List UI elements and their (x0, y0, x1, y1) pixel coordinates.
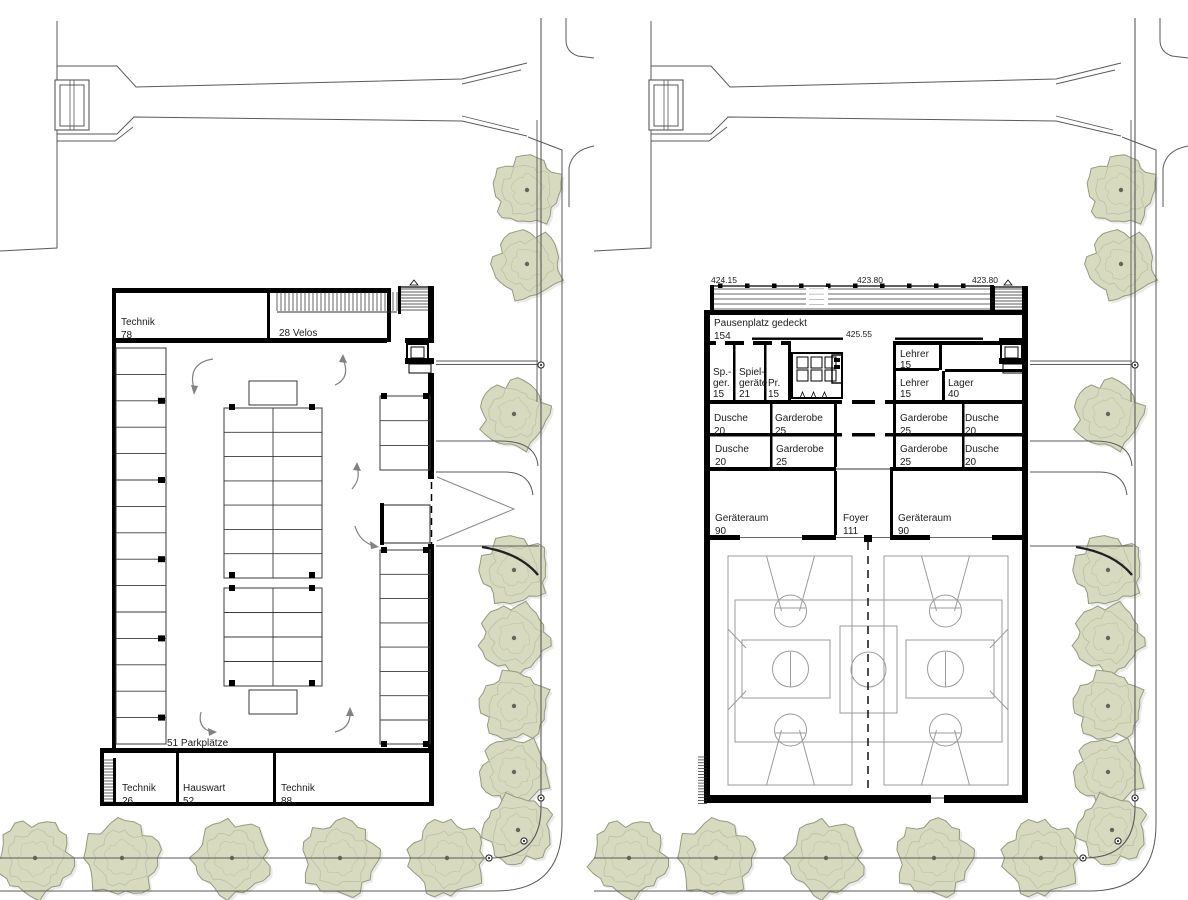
room-label-garderobe-l1: Garderobe (775, 413, 823, 424)
room-label-spielgeraete: Spiel- (739, 367, 765, 378)
tree (482, 793, 555, 868)
room-label-pausenplatz: Pausenplatz gedeckt (714, 318, 807, 329)
arrow-head (339, 354, 347, 363)
room-area-dusche-r1: 20 (965, 426, 977, 437)
tree-trunk-dot (1119, 188, 1123, 192)
tree (678, 818, 758, 897)
room-area-pausenplatz: 154 (714, 331, 731, 342)
site-boundary (594, 21, 651, 251)
elevation-label: 423.80 (857, 275, 883, 285)
room-area-geraeteraum-2: 90 (898, 526, 910, 537)
tree (1073, 670, 1147, 742)
tree-trunk-dot (1119, 262, 1123, 266)
driveway-edge-north (651, 63, 1121, 87)
tree (1087, 155, 1159, 227)
room-area-lehrer-1: 15 (900, 360, 912, 371)
room-area-hauswart-52: 52 (183, 796, 195, 807)
tree (303, 818, 383, 900)
labels-parking-level-plan: Technik78Technik26Hauswart52Technik8828 … (121, 317, 317, 807)
room-area-technik-88: 88 (281, 796, 293, 807)
room-area-technik-78: 78 (121, 330, 133, 341)
tree (1076, 793, 1150, 868)
tree-trunk-dot (512, 568, 516, 572)
tree (0, 821, 77, 900)
drive-arrow (335, 359, 346, 385)
room-label-dusche-r2: Dusche (965, 444, 999, 455)
room-area-geraeteraum-1: 90 (715, 526, 727, 537)
tree-trunk-dot (1106, 770, 1110, 774)
tree (407, 819, 487, 899)
room-area-garderobe-l1: 25 (775, 426, 787, 437)
tree-trunk-dot (516, 828, 520, 832)
room-label-sp-ger: Sp.- (713, 367, 731, 378)
elevation-label: 424.15 (711, 275, 737, 285)
room-area-lager: 40 (948, 389, 960, 400)
annotation-parkplaetze: 51 Parkplätze (167, 738, 229, 749)
street-kerb-outer (594, 137, 1156, 891)
tree (493, 155, 564, 227)
room-label-pr: 15 (768, 389, 780, 400)
tree (783, 818, 867, 900)
elevation-label: 423.80 (972, 275, 998, 285)
driveway-edge-south (57, 117, 527, 136)
plan-sheet: Technik78Technik26Hauswart52Technik8828 … (0, 0, 1188, 900)
room-label-lehrer-1: Lehrer (900, 349, 930, 360)
tree-canopy (189, 818, 270, 900)
annotation-velos: 28 Velos (279, 328, 317, 339)
arrow-head (191, 385, 198, 395)
room-label-technik-78: Technik (121, 317, 156, 328)
room-label-geraeteraum-2: Geräteraum (898, 513, 951, 524)
room-area-dusche-l1: 20 (714, 426, 726, 437)
room-label-technik-26: Technik (122, 783, 157, 794)
tree (1072, 601, 1148, 678)
parking-building (100, 280, 514, 806)
tree-trunk-dot (525, 188, 529, 192)
room-area-lehrer-2: 15 (900, 389, 912, 400)
room-label-spielgeraete: 21 (739, 389, 751, 400)
room-label-pr: Pr. (768, 378, 780, 389)
room-area-garderobe-r2: 25 (900, 457, 912, 468)
room-label-dusche-r1: Dusche (965, 413, 999, 424)
street-kerb-inner (0, 18, 541, 858)
tree-trunk-dot (512, 704, 516, 708)
room-label-lager: Lager (948, 378, 974, 389)
tree (897, 818, 977, 900)
room-label-garderobe-r2: Garderobe (900, 444, 948, 455)
tree-trunk-dot (512, 412, 516, 416)
room-label-garderobe-l2: Garderobe (776, 444, 824, 455)
room-label-technik-88: Technik (281, 783, 316, 794)
room-label-foyer: Foyer (843, 513, 869, 524)
sports-hall-building (698, 280, 1028, 803)
room-area-dusche-l2: 20 (715, 457, 727, 468)
arrow-head (208, 728, 217, 736)
street-kerb-outer (0, 137, 562, 891)
tree-trunk-dot (1106, 704, 1110, 708)
arrow-head (370, 541, 379, 549)
tree-trunk-dot (512, 636, 516, 640)
room-area-garderobe-r1: 25 (900, 426, 912, 437)
parking-level-plan: Technik78Technik26Hauswart52Technik8828 … (0, 18, 594, 900)
ramp-arrow (437, 477, 514, 541)
room-label-hauswart-52: Hauswart (183, 783, 225, 794)
stair-direction-mark (410, 280, 418, 285)
driveway-edge-north (57, 63, 527, 87)
room-label-dusche-l2: Dusche (715, 444, 749, 455)
tree (478, 601, 554, 678)
tree (1085, 230, 1160, 304)
room-label-lehrer-2: Lehrer (900, 378, 930, 389)
room-label-sp-ger: ger. (713, 378, 730, 389)
room-label-sp-ger: 15 (713, 389, 725, 400)
drive-arrow (193, 359, 213, 389)
tree (491, 230, 566, 304)
room-area-technik-26: 26 (122, 796, 134, 807)
tree-trunk-dot (1106, 568, 1110, 572)
room-label-garderobe-r1: Garderobe (900, 413, 948, 424)
driveway-edge-south (651, 117, 1121, 136)
arrow-head (353, 462, 361, 471)
room-area-garderobe-l2: 25 (776, 457, 788, 468)
room-label-spielgeraete: geräte (739, 378, 768, 389)
tree-trunk-dot (1106, 412, 1110, 416)
room-label-geraeteraum-1: Geräteraum (715, 513, 768, 524)
tree-trunk-dot (525, 262, 529, 266)
tree-canopy (783, 818, 864, 900)
street-kerb-inner (594, 18, 1135, 858)
tree (1001, 819, 1081, 899)
circulation-arrows (191, 354, 379, 736)
tree (479, 670, 552, 742)
room-label-dusche-l1: Dusche (714, 413, 748, 424)
tree-trunk-dot (512, 770, 516, 774)
tree-trunk-dot (1106, 636, 1110, 640)
room-area-dusche-r2: 20 (965, 457, 977, 468)
tree (587, 821, 671, 900)
arrow-head (346, 707, 354, 716)
elevation-label: 425.55 (846, 329, 872, 339)
stair-direction-mark (1004, 280, 1012, 285)
tree-trunk-dot (1110, 828, 1114, 832)
room-area-foyer: 111 (843, 526, 859, 537)
trees-layer (587, 155, 1160, 900)
site-plan-drawing: Technik78Technik26Hauswart52Technik8828 … (0, 0, 1188, 900)
site-boundary (0, 21, 57, 251)
sports-hall-ground-floor-plan: Pausenplatz gedeckt154Sp.-ger.15Spiel-ge… (587, 18, 1188, 900)
tree (189, 818, 273, 900)
tree (84, 818, 164, 897)
